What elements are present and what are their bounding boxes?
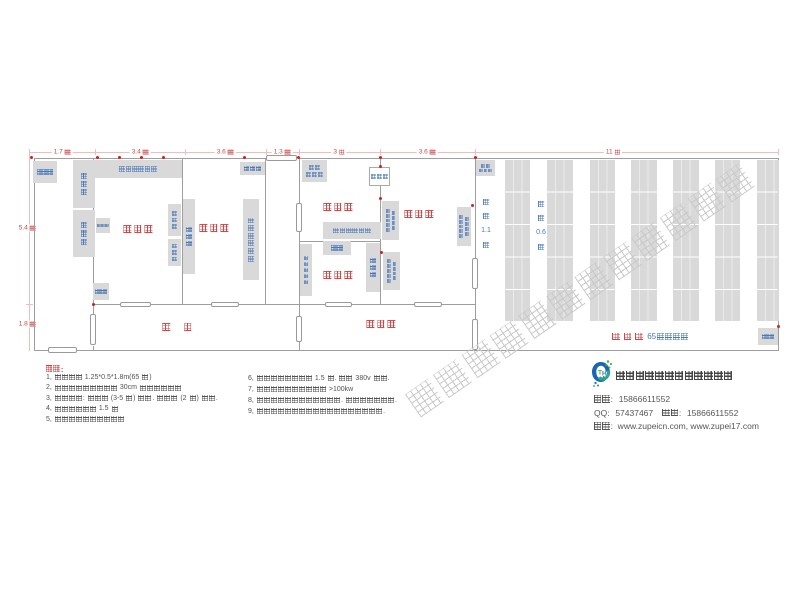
svg-text:H: H <box>602 371 607 378</box>
